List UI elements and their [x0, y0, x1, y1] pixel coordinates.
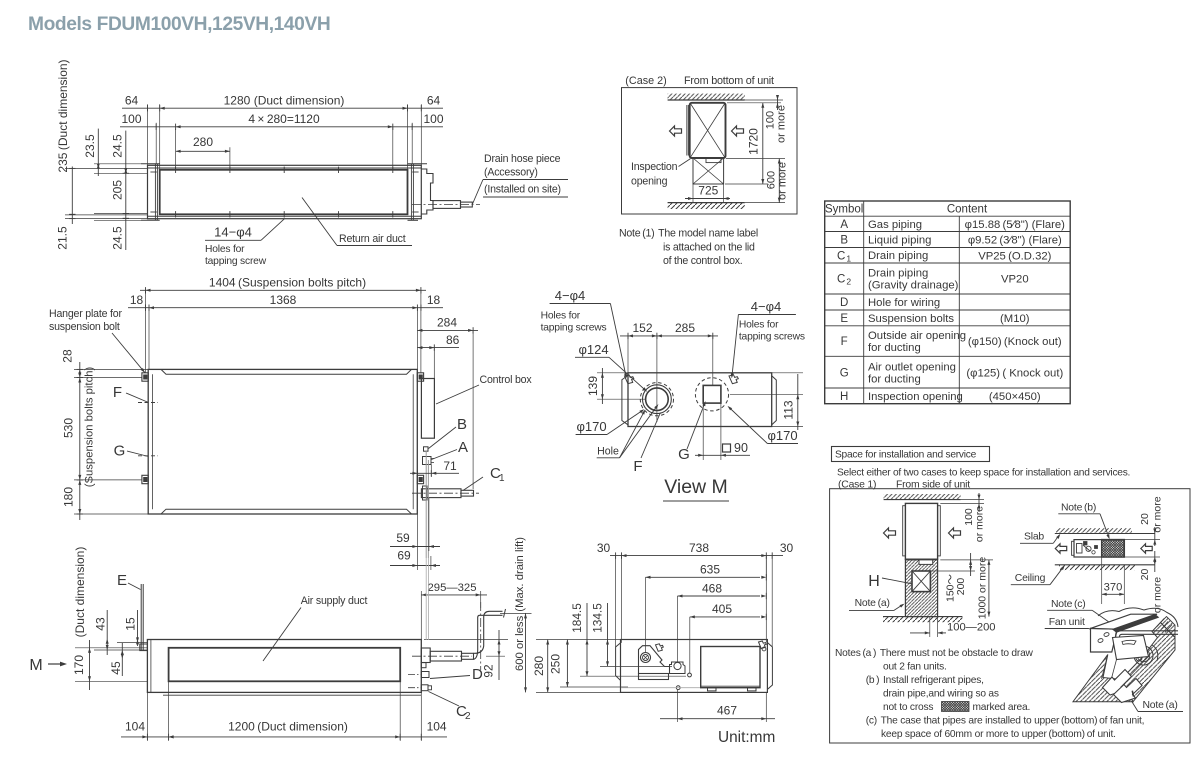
svg-text:Hole: Hole: [597, 446, 619, 458]
svg-text:or more: or more: [1152, 577, 1164, 613]
svg-text:F: F: [841, 336, 848, 348]
svg-text:295—325: 295—325: [428, 582, 477, 594]
svg-text:104: 104: [427, 720, 447, 734]
svg-text:205: 205: [111, 180, 125, 200]
svg-text:not to cross: not to cross: [883, 702, 933, 713]
svg-text:45: 45: [109, 661, 123, 675]
svg-text:467: 467: [717, 704, 737, 718]
svg-text:(Duct dimension): (Duct dimension): [73, 547, 87, 638]
svg-text:VP20: VP20: [1001, 274, 1029, 286]
svg-text:M: M: [29, 657, 42, 674]
svg-text:Fan unit: Fan unit: [1049, 617, 1085, 628]
svg-text:468: 468: [702, 581, 722, 595]
svg-text:VP25 (O.D.32): VP25 (O.D.32): [978, 250, 1051, 262]
svg-text:(c) The case that pipes are i: (c) The case that pipes are installed to…: [866, 716, 1145, 727]
svg-text:(φ125) ( Knock out): (φ125) ( Knock out): [966, 367, 1063, 379]
svg-text:or more: or more: [1152, 496, 1164, 532]
svg-text:(b ) Install refrigerant pipe: (b ) Install refrigerant pipes,: [866, 675, 984, 686]
svg-text:F: F: [633, 458, 642, 475]
svg-text:φ9.52 (3∕8") (Flare): φ9.52 (3∕8") (Flare): [968, 235, 1062, 247]
svg-text:Inspection: Inspection: [631, 161, 678, 173]
svg-text:φ170: φ170: [576, 419, 606, 434]
svg-text:1000 or more: 1000 or more: [977, 557, 989, 620]
svg-text:φ15.88 (5∕8") (Flare): φ15.88 (5∕8") (Flare): [965, 219, 1065, 231]
svg-text:G: G: [840, 367, 849, 379]
svg-text:keep space of 60mm or more to: keep space of 60mm or more to upper (bot…: [881, 729, 1116, 740]
svg-text:Holes for: Holes for: [205, 244, 245, 255]
svg-text:Note (b): Note (b): [1061, 503, 1096, 514]
svg-text:64: 64: [427, 94, 441, 108]
svg-text:E: E: [840, 313, 848, 325]
svg-text:tapping screws: tapping screws: [739, 332, 805, 343]
svg-text:Space for installation and ser: Space for installation and service: [835, 450, 977, 461]
svg-text:C: C: [837, 250, 845, 262]
svg-text:Hole for wiring: Hole for wiring: [868, 297, 940, 309]
svg-text:Holes for: Holes for: [541, 311, 581, 322]
svg-text:(Installed on site): (Installed on site): [484, 184, 561, 196]
svg-text:Drain piping: Drain piping: [868, 250, 928, 262]
svg-text:is attached on the lid: is attached on the lid: [663, 241, 755, 253]
svg-text:530: 530: [62, 418, 76, 438]
svg-text:2: 2: [846, 277, 851, 287]
svg-text:Note (1) The model name label: Note (1) The model name label: [619, 228, 758, 240]
svg-text:(φ150) (Knock out): (φ150) (Knock out): [968, 336, 1062, 348]
svg-text:600 or less (Max. drain lift): 600 or less (Max. drain lift): [514, 537, 526, 671]
svg-text:Inspection opening: Inspection opening: [868, 391, 963, 403]
svg-text:1368: 1368: [270, 293, 297, 307]
svg-text:200: 200: [955, 578, 967, 596]
svg-text:2: 2: [465, 711, 471, 722]
svg-text:152: 152: [632, 321, 652, 335]
svg-text:opening: opening: [631, 176, 668, 188]
svg-text:F: F: [113, 384, 122, 401]
svg-text:280: 280: [193, 135, 213, 149]
svg-text:64: 64: [125, 94, 139, 108]
svg-text:635: 635: [700, 563, 720, 577]
svg-text:D: D: [840, 297, 848, 309]
svg-text:18: 18: [427, 293, 441, 307]
svg-text:(Gravity drainage): (Gravity drainage): [868, 280, 959, 292]
svg-text:90: 90: [734, 441, 748, 455]
svg-text:4−φ4: 4−φ4: [751, 299, 781, 314]
svg-text:Content: Content: [947, 204, 988, 216]
svg-text:B: B: [840, 235, 848, 247]
svg-text:(450×450): (450×450): [989, 391, 1041, 403]
svg-text:Notes (a ) There must not be: Notes (a ) There must not be obstacle to…: [835, 648, 1034, 659]
svg-text:285: 285: [675, 321, 695, 335]
svg-text:G: G: [114, 443, 126, 460]
svg-text:or more: or more: [974, 506, 986, 542]
svg-text:Unit:mm: Unit:mm: [718, 729, 775, 746]
svg-text:tapping screw: tapping screw: [205, 256, 267, 267]
svg-text:(Case 2): (Case 2): [625, 75, 666, 87]
svg-text:134.5: 134.5: [591, 603, 605, 633]
svg-text:C: C: [837, 274, 845, 286]
svg-text:Symbol: Symbol: [825, 204, 863, 216]
svg-text:Liquid piping: Liquid piping: [868, 235, 931, 247]
svg-text:100: 100: [423, 112, 443, 126]
svg-text:Outside air opening: Outside air opening: [868, 330, 966, 342]
svg-text:23.5: 23.5: [83, 134, 97, 158]
svg-text:30: 30: [780, 541, 794, 555]
svg-text:1: 1: [499, 473, 505, 484]
svg-text:104: 104: [125, 720, 145, 734]
svg-text:for ducting: for ducting: [868, 342, 921, 354]
svg-text:φ124: φ124: [578, 342, 608, 357]
svg-text:284: 284: [437, 316, 457, 330]
svg-text:or more: or more: [777, 162, 789, 200]
svg-text:suspension bolt: suspension bolt: [49, 321, 120, 333]
svg-text:725: 725: [698, 184, 718, 198]
svg-text:Gas piping: Gas piping: [868, 219, 922, 231]
svg-text:Suspension bolts: Suspension bolts: [868, 313, 954, 325]
svg-text:Hanger plate for: Hanger plate for: [49, 308, 122, 320]
svg-text:69: 69: [397, 549, 411, 563]
svg-text:100: 100: [121, 112, 141, 126]
svg-text:405: 405: [712, 602, 732, 616]
svg-text:20: 20: [1139, 569, 1151, 581]
svg-text:Air supply duct: Air supply duct: [301, 595, 368, 607]
svg-text:1720: 1720: [747, 128, 761, 155]
svg-text:1280 (Duct dimension): 1280 (Duct dimension): [224, 94, 345, 108]
svg-text:4 × 280=1120: 4 × 280=1120: [248, 112, 320, 126]
svg-text:14−φ4: 14−φ4: [214, 225, 252, 240]
svg-text:170: 170: [72, 655, 86, 675]
svg-text:Models FDUM100VH,125VH,140VH: Models FDUM100VH,125VH,140VH: [28, 14, 330, 35]
svg-text:21.5: 21.5: [56, 226, 70, 250]
svg-text:Return air duct: Return air duct: [339, 233, 406, 245]
svg-text:Drain hose piece: Drain hose piece: [484, 153, 561, 165]
svg-text:H: H: [868, 573, 880, 590]
svg-text:1404 (Suspension bolts pitch): 1404 (Suspension bolts pitch): [209, 276, 366, 290]
svg-text:4−φ4: 4−φ4: [555, 288, 585, 303]
svg-text:100—200: 100—200: [947, 622, 996, 634]
svg-text:out 2 fan units.: out 2 fan units.: [883, 662, 947, 673]
svg-text:View M: View M: [664, 476, 728, 498]
svg-text:280: 280: [532, 656, 546, 676]
svg-text:A: A: [840, 219, 848, 231]
svg-text:113: 113: [782, 400, 796, 419]
svg-text:Control box: Control box: [480, 374, 533, 386]
svg-text:Note (c): Note (c): [1051, 599, 1086, 610]
svg-text:24.5: 24.5: [111, 226, 125, 250]
svg-text:28: 28: [61, 349, 75, 363]
svg-text:or more: or more: [776, 105, 788, 143]
svg-text:Slab: Slab: [1024, 532, 1044, 543]
svg-text:30: 30: [597, 541, 611, 555]
svg-text:E: E: [117, 572, 127, 589]
svg-text:1200 (Duct dimension): 1200 (Duct dimension): [228, 720, 348, 734]
svg-text:of the control box.: of the control box.: [663, 255, 742, 267]
svg-text:18: 18: [130, 293, 144, 307]
svg-text:Note (a): Note (a): [1143, 700, 1178, 711]
svg-text:139: 139: [586, 376, 600, 396]
svg-text:370: 370: [1104, 582, 1123, 594]
svg-text:Holes for: Holes for: [739, 320, 779, 331]
svg-text:drain pipe,and wiring so as: drain pipe,and wiring so as: [883, 689, 999, 700]
svg-text:H: H: [840, 391, 848, 403]
svg-text:180: 180: [62, 487, 76, 507]
svg-text:B: B: [457, 416, 467, 433]
svg-text:738: 738: [689, 541, 709, 555]
svg-text:184.5: 184.5: [570, 603, 584, 633]
svg-text:D: D: [472, 666, 483, 683]
svg-text:From bottom of unit: From bottom of unit: [684, 75, 774, 87]
svg-text:Ceiling: Ceiling: [1015, 573, 1046, 584]
svg-text:86: 86: [446, 333, 460, 347]
svg-text:Select either of two cases to: Select either of two cases to keep space…: [837, 468, 1130, 479]
svg-text:G: G: [678, 446, 690, 463]
svg-text:φ170: φ170: [767, 428, 797, 443]
svg-text:235 (Duct dimension): 235 (Duct dimension): [56, 59, 70, 172]
svg-text:for ducting: for ducting: [868, 373, 921, 385]
svg-text:Air outlet opening: Air outlet opening: [868, 361, 956, 373]
svg-text:(M10): (M10): [1000, 313, 1030, 325]
svg-text:(Suspension bolts pitch): (Suspension bolts pitch): [84, 366, 96, 487]
svg-text:marked area.: marked area.: [973, 702, 1031, 713]
svg-text:24.5: 24.5: [111, 134, 125, 158]
svg-text:71: 71: [443, 459, 457, 473]
svg-text:(Accessory): (Accessory): [484, 167, 538, 179]
svg-text:A: A: [458, 439, 468, 456]
svg-text:Drain piping: Drain piping: [868, 268, 928, 280]
svg-text:43: 43: [94, 617, 108, 631]
svg-text:1: 1: [846, 253, 851, 263]
svg-text:92: 92: [482, 664, 496, 677]
svg-text:Note (a): Note (a): [855, 598, 890, 609]
svg-text:15: 15: [124, 617, 138, 631]
svg-text:20: 20: [1139, 513, 1151, 525]
svg-text:59: 59: [396, 531, 410, 545]
svg-text:tapping screws: tapping screws: [541, 323, 607, 334]
svg-text:250: 250: [549, 654, 563, 674]
